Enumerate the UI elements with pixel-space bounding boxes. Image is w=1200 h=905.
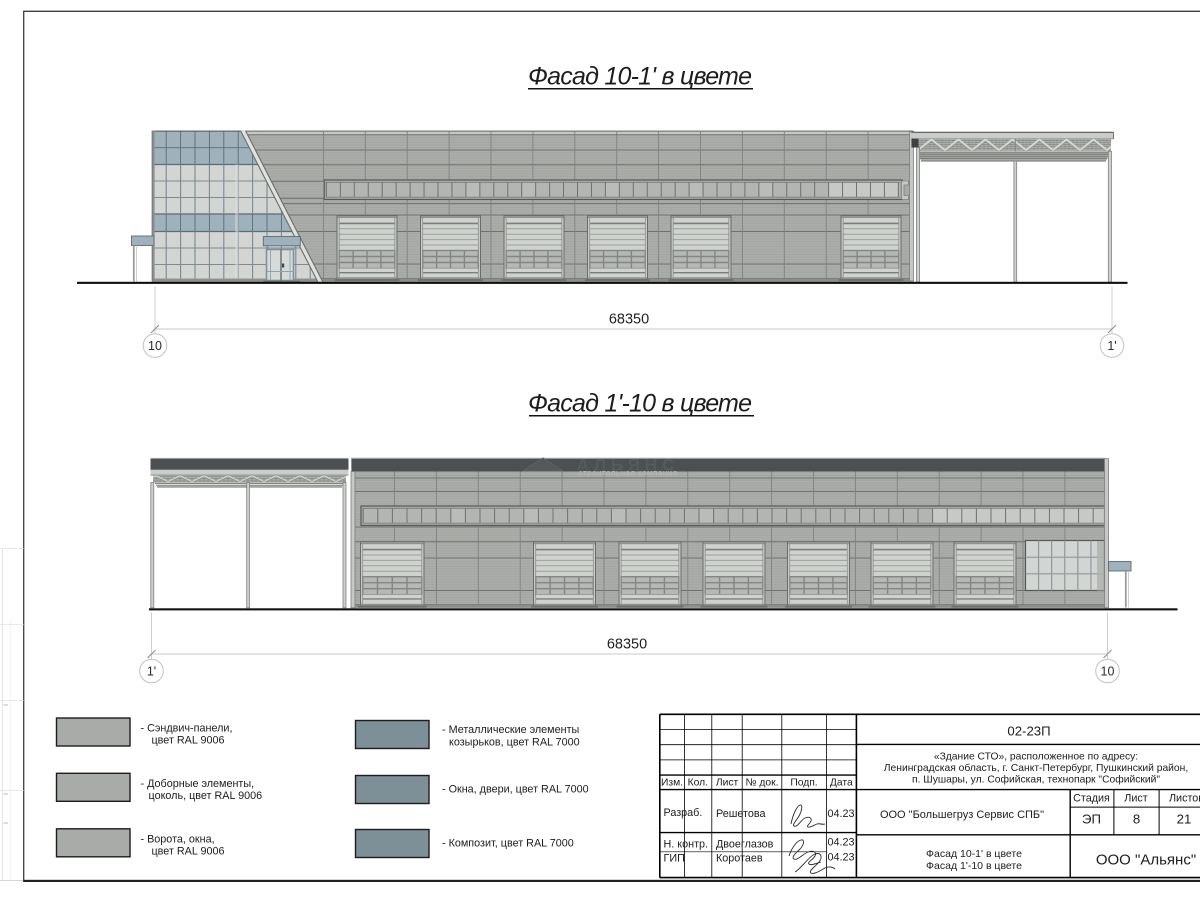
svg-text:- Сэндвич-панели,: - Сэндвич-панели, — [141, 723, 233, 735]
svg-text:Подп.: Подп. — [790, 778, 817, 789]
svg-text:Разраб.: Разраб. — [664, 807, 703, 819]
svg-text:04.23: 04.23 — [827, 808, 854, 820]
svg-text:ЭП: ЭП — [1082, 812, 1101, 827]
svg-text:ООО "Большегруз Сервис СПБ": ООО "Большегруз Сервис СПБ" — [880, 809, 1044, 821]
svg-text:Лист: Лист — [716, 778, 739, 789]
svg-text:1': 1' — [1107, 339, 1116, 353]
svg-text:10: 10 — [148, 339, 162, 353]
svg-text:Ленинградская область, г. Санк: Ленинградская область, г. Санкт-Петербур… — [884, 762, 1188, 774]
svg-text:1': 1' — [147, 665, 156, 679]
svg-text:68350: 68350 — [607, 637, 647, 653]
svg-text:Фасад 1'-10 в цвете: Фасад 1'-10 в цвете — [528, 390, 752, 418]
svg-text:- Доборные элементы,: - Доборные элементы, — [141, 778, 255, 790]
svg-text:Лист: Лист — [1124, 793, 1148, 805]
svg-text:«Здание СТО», расположенное по: «Здание СТО», расположенное по адресу: — [934, 752, 1138, 763]
svg-text:21: 21 — [1177, 812, 1192, 827]
svg-text:ООО "Альянс": ООО "Альянс" — [1096, 852, 1196, 869]
svg-text:козырьков, цвет RAL 7000: козырьков, цвет RAL 7000 — [449, 737, 580, 749]
svg-text:04.23: 04.23 — [827, 852, 854, 864]
svg-text:№ док.: № док. — [745, 778, 778, 789]
svg-text:строительная компания: строительная компания — [578, 469, 677, 478]
svg-text:Решетова: Решетова — [716, 808, 766, 820]
svg-text:Стадия: Стадия — [1073, 793, 1110, 805]
svg-text:Фасад 10-1' в цвете: Фасад 10-1' в цвете — [926, 848, 1022, 860]
svg-text:Коротаев: Коротаев — [716, 853, 763, 865]
svg-text:ГИП: ГИП — [664, 853, 685, 865]
svg-text:Дата: Дата — [830, 778, 853, 789]
svg-text:- Окна, двери, цвет RAL 7000: - Окна, двери, цвет RAL 7000 — [442, 784, 589, 796]
svg-text:Н. контр.: Н. контр. — [664, 839, 709, 851]
svg-text:04.23: 04.23 — [827, 837, 854, 849]
svg-text:02-23П: 02-23П — [1007, 724, 1050, 739]
svg-text:цвет RAL 9006: цвет RAL 9006 — [152, 846, 225, 858]
svg-text:Кол.: Кол. — [688, 778, 708, 789]
svg-text:Изм.: Изм. — [661, 778, 683, 789]
svg-text:8: 8 — [1133, 812, 1140, 827]
svg-text:Двоеглазов: Двоеглазов — [716, 839, 774, 851]
svg-text:Фасад 10-1' в цвете: Фасад 10-1' в цвете — [528, 63, 752, 91]
svg-text:- Металлические элементы: - Металлические элементы — [442, 724, 580, 736]
svg-text:10: 10 — [1101, 665, 1115, 679]
svg-text:п. Шушары, ул. Софийская, техн: п. Шушары, ул. Софийская, технопарк "Соф… — [912, 774, 1160, 786]
svg-text:цоколь, цвет RAL 9006: цоколь, цвет RAL 9006 — [149, 790, 263, 802]
svg-text:- Ворота, окна,: - Ворота, окна, — [141, 834, 215, 846]
svg-text:- Композит, цвет RAL 7000: - Композит, цвет RAL 7000 — [442, 838, 574, 850]
svg-text:68350: 68350 — [609, 312, 649, 328]
svg-text:Фасад 1'-10 в цвете: Фасад 1'-10 в цвете — [926, 860, 1022, 872]
svg-text:цвет RAL 9006: цвет RAL 9006 — [152, 735, 225, 747]
svg-text:Листов: Листов — [1169, 793, 1200, 805]
